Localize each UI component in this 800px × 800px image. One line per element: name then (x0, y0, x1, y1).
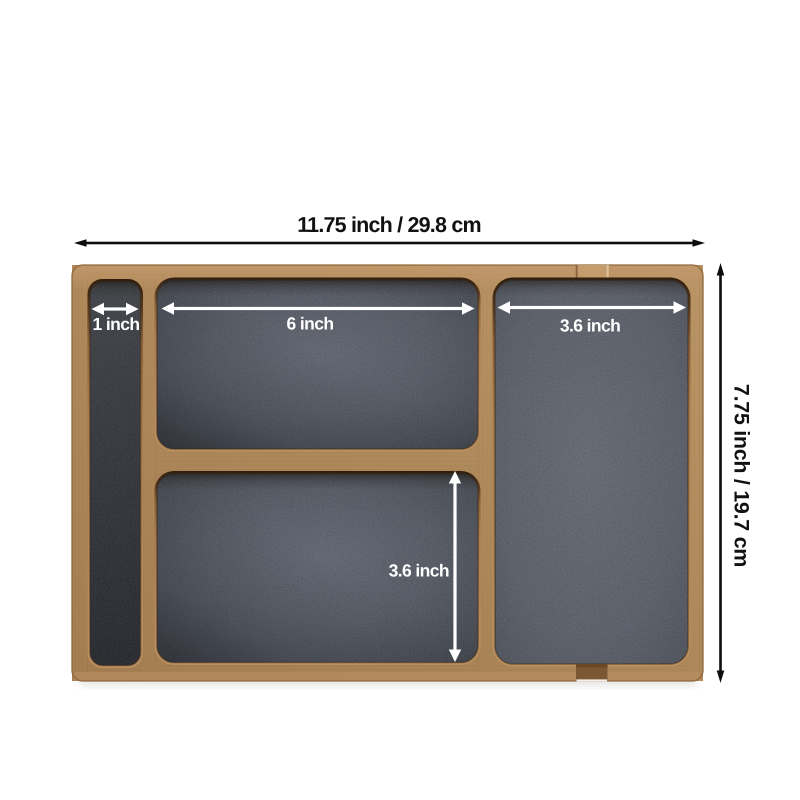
svg-text:7.75 inch / 19.7 cm: 7.75 inch / 19.7 cm (729, 384, 753, 567)
svg-text:11.75 inch / 29.8 cm: 11.75 inch / 29.8 cm (297, 213, 481, 237)
svg-text:3.6 inch: 3.6 inch (389, 560, 449, 580)
svg-text:1 inch: 1 inch (93, 314, 140, 334)
svg-text:3.6 inch: 3.6 inch (560, 315, 620, 335)
svg-text:6 inch: 6 inch (287, 313, 334, 333)
